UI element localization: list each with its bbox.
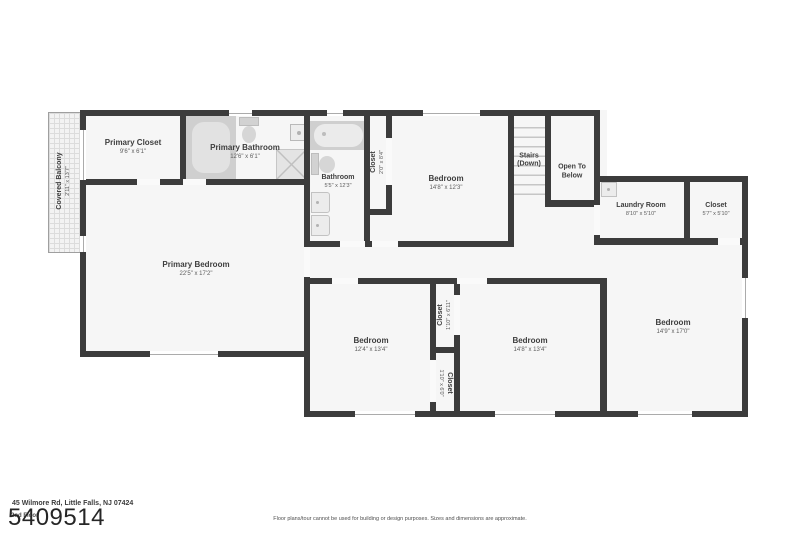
door-opening <box>137 179 160 185</box>
room-name: Laundry Room <box>616 202 665 210</box>
room-name: Stairs <box>519 153 538 161</box>
room-label-closet-ne: Closet 5'7" x 5'10" <box>702 202 729 218</box>
corner-shower-icon <box>276 149 307 180</box>
room-dims: 2'0" x 8'4" <box>379 150 386 174</box>
window <box>229 110 252 116</box>
door-opening <box>386 138 392 185</box>
room-dims: 14'8" x 13'4" <box>514 347 547 354</box>
washer-icon <box>601 182 617 197</box>
room-label-primary-closet: Primary Closet 9'6" x 6'1" <box>105 138 161 156</box>
room-label-stairs: Stairs (Down) <box>517 153 541 170</box>
room-dims: 14'9" x 17'0" <box>657 329 690 336</box>
room-dims: 1'10" x 6'0" <box>437 369 444 396</box>
room-name: Bedroom <box>655 318 690 328</box>
room-name: Closet <box>445 372 453 393</box>
room-label-open-to-below: Open To Below <box>552 163 592 182</box>
toilet-icon <box>239 117 259 143</box>
window <box>423 110 480 116</box>
room-name: Open To Below <box>552 163 592 182</box>
floor-plan: Covered Balcony 2'11" x 13'7" Primary Cl… <box>0 0 800 533</box>
door-opening <box>718 238 740 245</box>
room-dims: 9'6" x 6'1" <box>120 149 146 156</box>
door-opening <box>430 360 436 402</box>
room-dims: 22'5" x 17'2" <box>180 271 213 278</box>
wall <box>80 110 310 116</box>
room-label-bedroom-e: Bedroom 14'9" x 17'0" <box>655 318 690 336</box>
window <box>355 411 415 417</box>
wall <box>684 176 690 245</box>
window <box>80 130 86 180</box>
disclaimer-text: Floor plans/tour cannot be used for buil… <box>0 516 800 522</box>
room-label-closet-mid-upper: Closet 1'10" x 6'11" <box>437 300 453 330</box>
room-dims: 12'6" x 6'1" <box>230 154 260 161</box>
room-name: Primary Bedroom <box>162 260 229 270</box>
wall <box>508 113 514 247</box>
window <box>150 351 218 357</box>
door-opening <box>454 295 460 335</box>
wall <box>305 241 513 247</box>
room-name-sub: (Down) <box>517 161 541 169</box>
room-label-bedroom-top: Bedroom 14'8" x 12'3" <box>428 174 463 192</box>
door-opening <box>304 247 310 277</box>
room-dims: 5'7" x 5'10" <box>702 211 729 218</box>
room-dims: 12'4" x 13'4" <box>355 347 388 354</box>
door-opening <box>372 241 398 247</box>
room-name: Bedroom <box>512 336 547 346</box>
bathtub-icon <box>310 121 367 150</box>
window <box>327 110 343 116</box>
room-name: Closet <box>437 304 445 325</box>
sink-icon <box>311 192 330 213</box>
wall <box>600 280 607 417</box>
room-label-covered-balcony: Covered Balcony 2'11" x 13'7" <box>56 152 72 209</box>
window <box>638 411 692 417</box>
window <box>742 278 748 318</box>
room-label-closet-mid-lower: Closet 1'10" x 6'0" <box>437 369 453 396</box>
room-name: Bathroom <box>321 174 354 182</box>
wall <box>364 113 370 247</box>
door-opening <box>340 241 365 247</box>
wall <box>545 113 551 207</box>
room-dims: 14'8" x 12'3" <box>430 185 463 192</box>
room-label-bathroom: Bathroom 5'5" x 12'3" <box>321 174 354 190</box>
door-opening <box>594 205 600 235</box>
room-name: Bedroom <box>428 174 463 184</box>
room-name: Closet <box>370 151 378 172</box>
room-dims: 8'10" x 5'10" <box>626 211 656 218</box>
door-opening <box>457 278 487 284</box>
room-name: Primary Closet <box>105 138 161 148</box>
window <box>80 236 86 252</box>
room-label-bedroom-s: Bedroom 14'8" x 13'4" <box>512 336 547 354</box>
room-label-bedroom-sw: Bedroom 12'4" x 13'4" <box>353 336 388 354</box>
listing-id: 5409514 <box>8 506 105 530</box>
wall <box>596 176 748 182</box>
room-dims: 5'5" x 12'3" <box>324 183 351 190</box>
room-dims: 2'11" x 13'7" <box>65 166 72 196</box>
room-label-primary-bedroom: Primary Bedroom 22'5" x 17'2" <box>162 260 229 278</box>
room-name: Covered Balcony <box>56 152 64 209</box>
room-name: Closet <box>705 202 726 210</box>
wall <box>180 113 186 179</box>
room-label-primary-bathroom: Primary Bathroom 12'6" x 6'1" <box>210 143 280 161</box>
room-dims: 1'10" x 6'11" <box>446 300 453 330</box>
door-opening <box>183 179 206 185</box>
room-label-laundry-room: Laundry Room 8'10" x 5'10" <box>616 202 665 218</box>
door-opening <box>332 278 358 284</box>
room-label-hall-closet: Closet 2'0" x 8'4" <box>370 150 386 174</box>
window <box>495 411 555 417</box>
wall <box>548 200 600 207</box>
room-name: Primary Bathroom <box>210 143 280 153</box>
room-name: Bedroom <box>353 336 388 346</box>
sink-icon <box>311 215 330 236</box>
